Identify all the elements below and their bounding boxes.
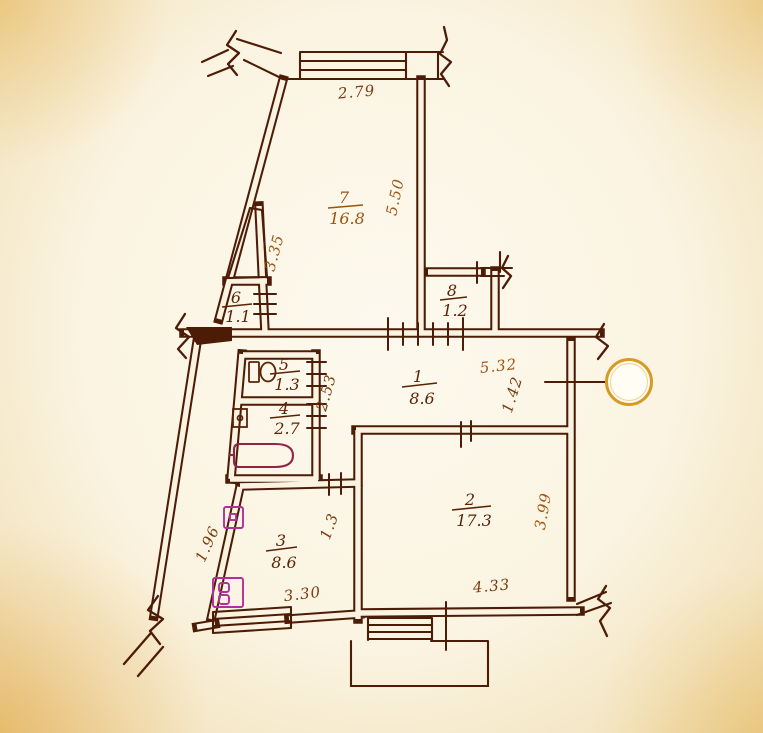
room-7-label: 7 16.8: [328, 188, 365, 228]
room-6-area: 1.1: [225, 307, 250, 326]
window-top: [283, 52, 443, 79]
room-3-number: 3: [276, 531, 286, 550]
dim-room2-width: 4.33: [471, 575, 511, 596]
window-balcony-door: [368, 618, 432, 640]
room-6-number: 6: [231, 288, 241, 307]
room-2-label: 2 17.3: [452, 490, 492, 530]
room-3-label: 3 8.6: [266, 531, 297, 572]
dim-hall-width: 5.32: [479, 355, 518, 377]
dim-kitchen-right-wall: 1.3: [316, 511, 342, 542]
walls-outline: [154, 80, 600, 627]
dim-top-window: 2.79: [336, 81, 376, 102]
room-7-number: 7: [339, 188, 350, 207]
balcony: [351, 641, 488, 686]
bathtub-icon: [229, 444, 293, 467]
room-8-area: 1.2: [442, 301, 467, 320]
room-2-area: 17.3: [456, 511, 492, 530]
dim-hall-depth: 1.42: [498, 374, 526, 415]
dim-kitchen-width: 3.30: [283, 583, 322, 605]
break-room8-extension: [502, 256, 511, 288]
room-4-area: 2.7: [273, 419, 300, 438]
room-8-number: 8: [447, 281, 457, 300]
room-4-number: 4: [278, 399, 289, 418]
room-2-number: 2: [464, 490, 475, 509]
room-7-area: 16.8: [329, 209, 365, 228]
room-5-number: 5: [279, 355, 289, 374]
room-8-label: 8 1.2: [440, 281, 468, 320]
dim-kitchen-left-wall: 1.96: [192, 523, 224, 564]
top-left-wall: [202, 39, 283, 79]
punch-hole-circle: [607, 360, 652, 405]
room-5-area: 1.3: [274, 375, 299, 394]
room-1-label: 1 8.6: [402, 367, 437, 408]
room-3-area: 8.6: [271, 553, 296, 572]
room-1-number: 1: [413, 367, 423, 386]
dim-room2-depth: 3.99: [531, 491, 555, 531]
window-kitchen: [213, 607, 291, 633]
floor-plan-drawing: 7 16.8 8 1.2 6 1.1 5 1.3 4 2.7 1 8.6: [0, 0, 763, 733]
toilet-icon: [249, 362, 276, 382]
scanned-floor-plan: 7 16.8 8 1.2 6 1.1 5 1.3 4 2.7 1 8.6: [0, 0, 763, 733]
room-1-area: 8.6: [409, 389, 434, 408]
dimension-texts: 2.79 5.50 3.35 5.32 1.42 2.53 3.99 4.33 …: [192, 81, 556, 605]
room-5-label: 5 1.3: [270, 355, 300, 394]
dim-room7-depth: 5.50: [382, 177, 407, 217]
break-top-right: [440, 27, 451, 86]
